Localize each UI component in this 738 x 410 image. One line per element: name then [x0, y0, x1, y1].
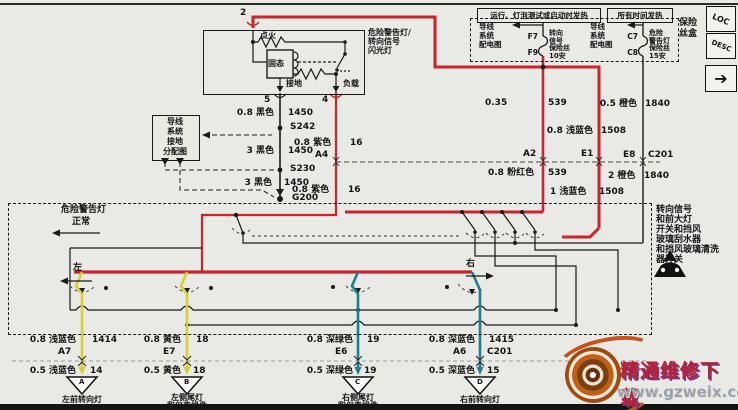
- fusebox-ref-right-line2: 系统: [590, 32, 605, 40]
- outC-circuit-top: 19: [367, 336, 380, 345]
- outD-connector2: C201: [487, 348, 512, 357]
- outA-gauge-top: 0.8 浅蓝色: [10, 336, 76, 345]
- outC-gauge-top: 0.8 深绿色: [294, 336, 353, 345]
- fuse-c8-label: C8: [620, 49, 638, 57]
- flasher-module-box: [203, 30, 365, 95]
- outC-connector: E6: [335, 348, 347, 357]
- pin5-label: 5: [264, 96, 270, 105]
- wire1840b-gauge: 2 橙色: [608, 172, 635, 181]
- fuse-c7-label: C7: [620, 33, 638, 41]
- hot-at-all-times-banner: 所有时间发热: [607, 8, 673, 23]
- wire539-circuit: 539: [548, 99, 567, 108]
- load-wire-gauge1: 0.8 紫色: [294, 139, 331, 148]
- wire1508b-gauge: 1 浅蓝色: [550, 188, 586, 197]
- ground-wire-gauge2: 3 黑色: [234, 147, 274, 156]
- outC-gauge-bottom: 0.5 深绿色: [298, 367, 353, 376]
- bottom-connector-row: [12, 356, 648, 366]
- splice-s230-label: S230: [290, 165, 315, 174]
- wire539-gauge: 0.35: [485, 99, 507, 108]
- loc-button[interactable]: LOC: [706, 6, 736, 32]
- pin4-label: 4: [322, 96, 328, 105]
- ground-ref-line4: 分配图: [153, 148, 197, 156]
- solid-state-label: 固态: [268, 60, 284, 68]
- wire1508b-circuit: 1508: [599, 188, 624, 197]
- turn-fuse-name-line4: 10安: [549, 53, 566, 60]
- ground-wire-gauge1: 0.8 黑色: [226, 109, 274, 118]
- outA-circuit-top: 1414: [92, 336, 117, 345]
- inline-connector-row: [333, 157, 660, 166]
- wire1508-circuit: 1508: [601, 127, 626, 136]
- normal-label: 正常: [72, 218, 90, 227]
- outB-gauge-top: 0.8 黄色: [128, 336, 181, 345]
- outB-circuit-top: 18: [196, 336, 209, 345]
- wire1840b-circuit: 1840: [644, 172, 669, 181]
- outB-circuit-bottom: 18: [193, 367, 206, 376]
- outC-lamp-letter: C: [355, 378, 360, 386]
- flasher-name-line3: 闪光灯: [368, 47, 392, 55]
- hazard-lamp-label: 危险警告灯: [61, 206, 106, 215]
- outA-gauge-bottom: 0.5 浅蓝色: [16, 367, 76, 376]
- outD-lamp-letter: D: [477, 378, 483, 386]
- outB-lamp-letter: B: [184, 378, 189, 386]
- outA-circuit-bottom: 14: [90, 367, 103, 376]
- fuse-f7-label: F7: [520, 33, 538, 41]
- ignition-label: 点火: [260, 32, 276, 40]
- fusebox-ref-left-line1: 导线: [479, 23, 494, 31]
- fusebox-label-line1: 保险: [679, 19, 697, 28]
- desc-button[interactable]: DESC: [706, 33, 736, 59]
- outB-gauge-bottom: 0.5 黄色: [130, 367, 181, 376]
- ground-ref-line1: 导线: [153, 118, 197, 126]
- load-pin-label: 负载: [343, 80, 359, 88]
- connector-e8-label: E8: [623, 151, 635, 160]
- ground-pin-label: 接地: [286, 80, 302, 88]
- ground-wire-circuit1: 1450: [288, 109, 313, 118]
- ground-wire-chain: [276, 93, 284, 202]
- connector-c201-label: C201: [648, 151, 673, 160]
- outB-connector: E7: [163, 348, 175, 357]
- wire539b-gauge: 0.8 粉红色: [488, 169, 534, 178]
- ground-ref-line3: 接地: [153, 138, 197, 146]
- pin2-label: 2: [240, 9, 246, 18]
- outA-connector: A7: [58, 348, 71, 357]
- switch-note-line6: 器开关: [656, 256, 683, 265]
- wire539b-circuit: 539: [548, 169, 567, 178]
- splice-s242-label: S242: [290, 123, 315, 132]
- fusebox-ref-right-line1: 导线: [590, 23, 605, 31]
- watermark-url-link[interactable]: www.gzweix.com: [617, 383, 738, 401]
- fuse-f9-label: F9: [520, 49, 538, 57]
- next-page-button[interactable]: ➔: [705, 65, 737, 92]
- hot-in-run-banner: 运行、灯泡测试或启动时发热: [477, 8, 601, 23]
- fusebox-ref-right-line3: 配电图: [590, 41, 613, 49]
- load-wire-circuit2: 16: [348, 186, 361, 195]
- outD-gauge-top: 0.8 深蓝色: [414, 336, 475, 345]
- fusebox-label-line2: 丝盒: [679, 30, 697, 39]
- outD-connector: A6: [453, 348, 466, 357]
- turn-hazard-switch-box: [8, 203, 652, 335]
- wiring-diagram-page: 运行、灯泡测试或启动时发热 所有时间发热 LOC DESC ➔ 2 点火 固态 …: [0, 0, 738, 410]
- ground-ref-line2: 系统: [153, 128, 197, 136]
- wire1508-gauge: 0.8 浅蓝色: [535, 127, 593, 136]
- load-wire-gauge2: 0.8 紫色: [292, 186, 329, 195]
- hazard-fuse-name-line4: 15安: [649, 53, 666, 60]
- load-wire-circuit1: 16: [350, 139, 363, 148]
- connector-a2-label: A2: [523, 150, 536, 159]
- lamp-symbols: [67, 377, 495, 394]
- outD-gauge-bottom: 0.5 深蓝色: [419, 367, 475, 376]
- outD-circuit-top: 1415: [489, 336, 514, 345]
- right-arrow-icon: ➔: [714, 69, 727, 88]
- fusebox-ref-left-line3: 配电图: [479, 41, 502, 49]
- left-position-label: 左: [73, 264, 82, 273]
- connector-e1-label: E1: [581, 150, 593, 159]
- wire1840-gauge: 0.5 橙色: [595, 100, 637, 109]
- connector-a4-label: A4: [315, 151, 328, 160]
- ground-wire-gauge3: 3 黑色: [232, 179, 272, 188]
- fusebox-ref-left-line2: 系统: [479, 32, 494, 40]
- wire1840-circuit: 1840: [645, 100, 670, 109]
- outC-circuit-bottom: 19: [364, 367, 377, 376]
- right-position-label: 右: [466, 260, 475, 269]
- watermark-logo-icon: [565, 347, 623, 403]
- outD-circuit-bottom: 15: [487, 367, 500, 376]
- outA-lamp-letter: A: [79, 378, 84, 386]
